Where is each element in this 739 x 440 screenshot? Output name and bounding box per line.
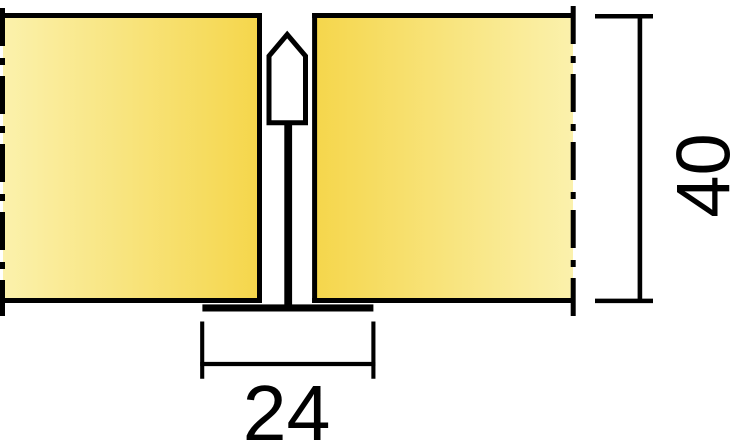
- svg-text:40: 40: [662, 133, 739, 218]
- svg-text:24: 24: [243, 369, 331, 440]
